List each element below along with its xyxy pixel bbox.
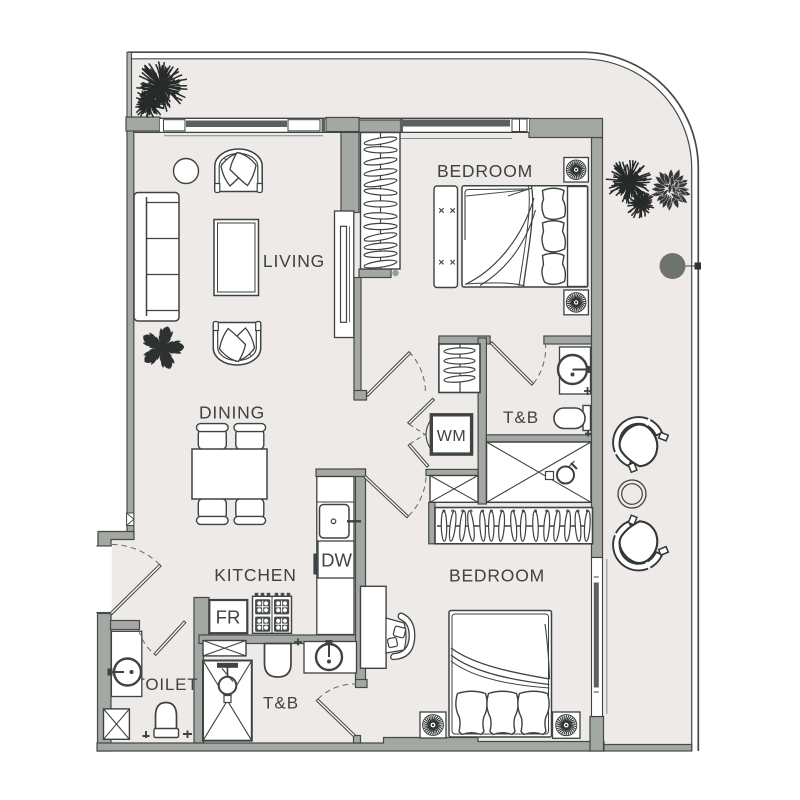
svg-text:WM: WM xyxy=(437,428,466,445)
svg-text:BEDROOM: BEDROOM xyxy=(449,566,545,586)
svg-text:KITCHEN: KITCHEN xyxy=(214,565,296,585)
svg-text:T&B: T&B xyxy=(263,694,299,713)
svg-text:DW: DW xyxy=(321,550,352,571)
svg-text:T&B: T&B xyxy=(503,408,539,427)
svg-text:TOILET: TOILET xyxy=(134,675,198,694)
svg-text:FR: FR xyxy=(216,607,241,628)
svg-text:BEDROOM: BEDROOM xyxy=(437,161,533,181)
svg-text:DINING: DINING xyxy=(199,403,265,423)
svg-text:LIVING: LIVING xyxy=(263,251,325,271)
